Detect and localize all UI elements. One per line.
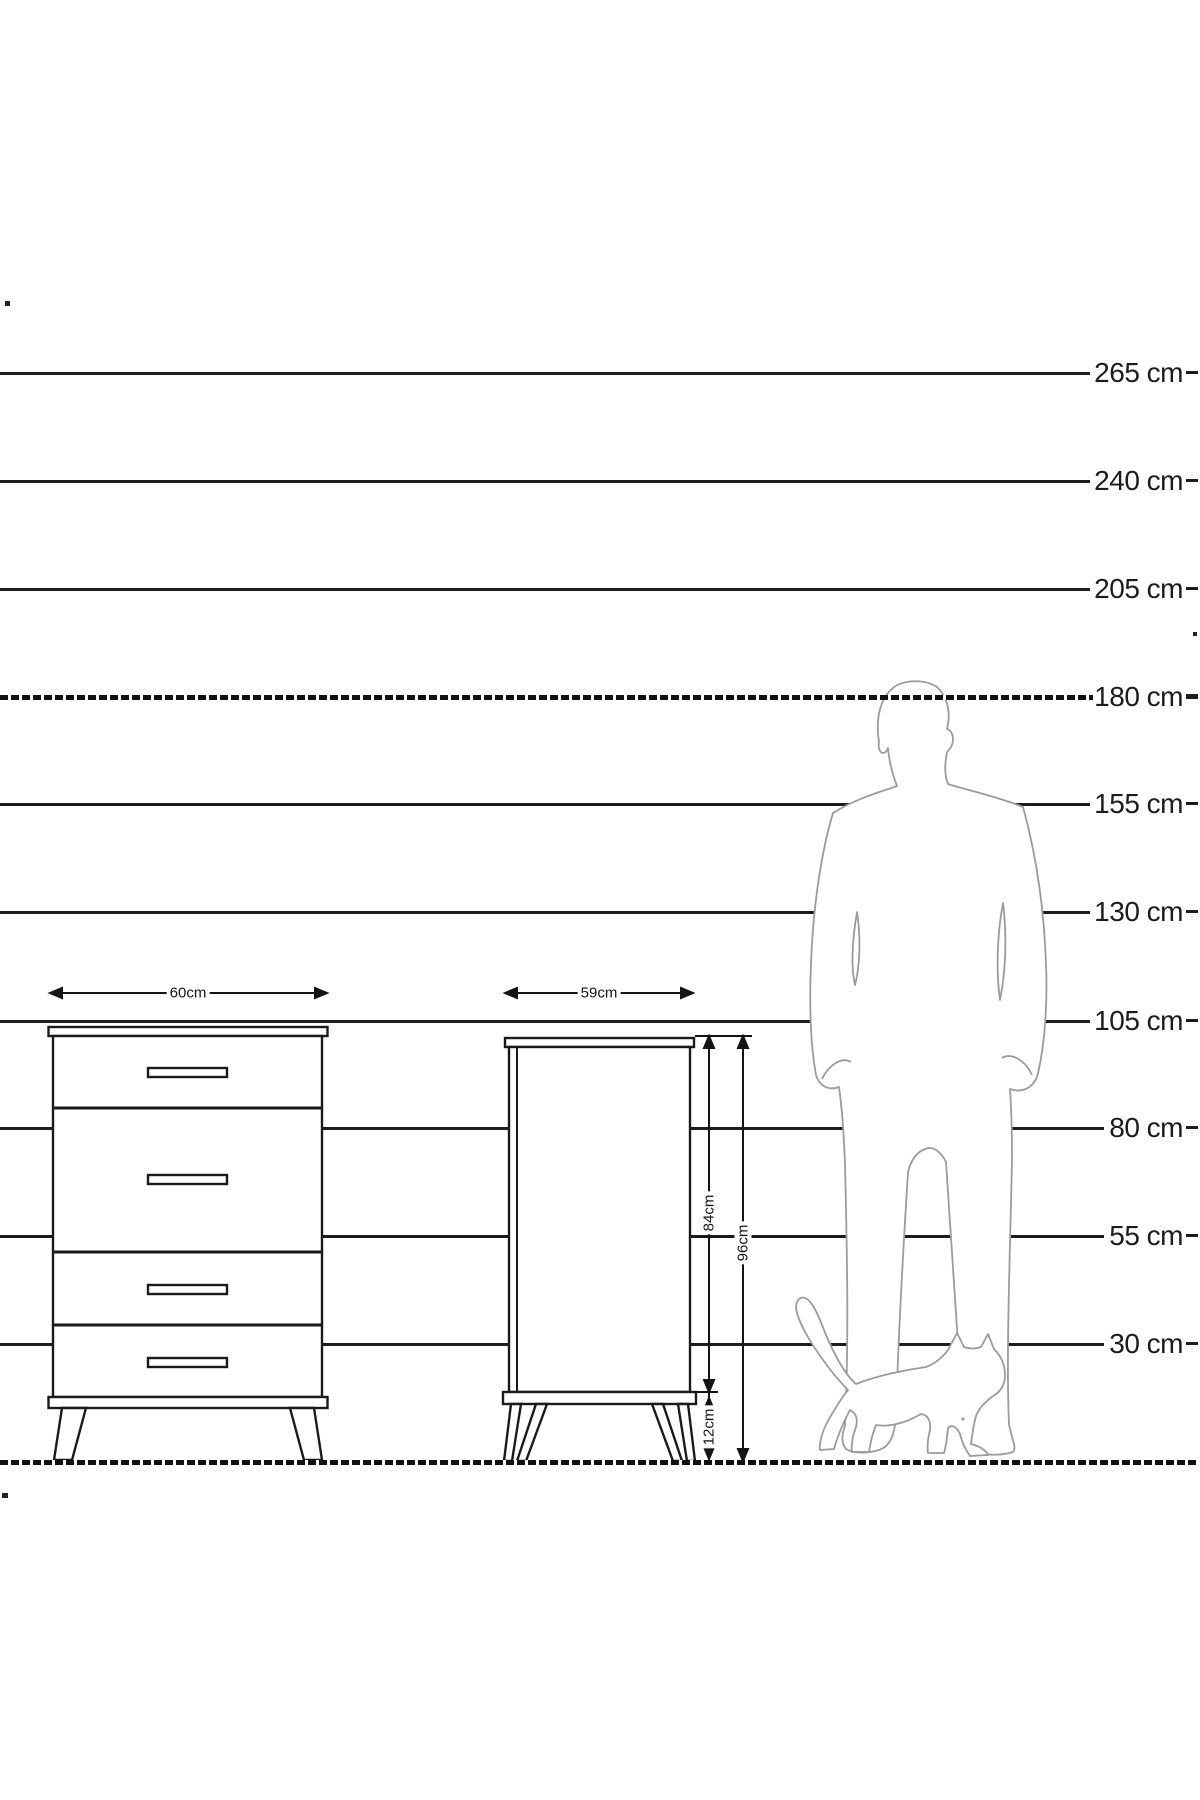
diagram-canvas: 265 cm240 cm205 cm180 cm155 cm130 cm105 … xyxy=(0,0,1200,1800)
dimension-layer xyxy=(0,0,1200,1800)
front-width-label: 60cm xyxy=(167,985,210,1002)
total-height-label: 96cm xyxy=(735,1222,752,1265)
speck xyxy=(1193,632,1197,636)
body-height-label: 84cm xyxy=(701,1192,718,1235)
speck xyxy=(5,301,10,306)
leg-height-label: 12cm xyxy=(701,1406,718,1449)
speck xyxy=(2,1493,8,1498)
side-width-label: 59cm xyxy=(578,985,621,1002)
